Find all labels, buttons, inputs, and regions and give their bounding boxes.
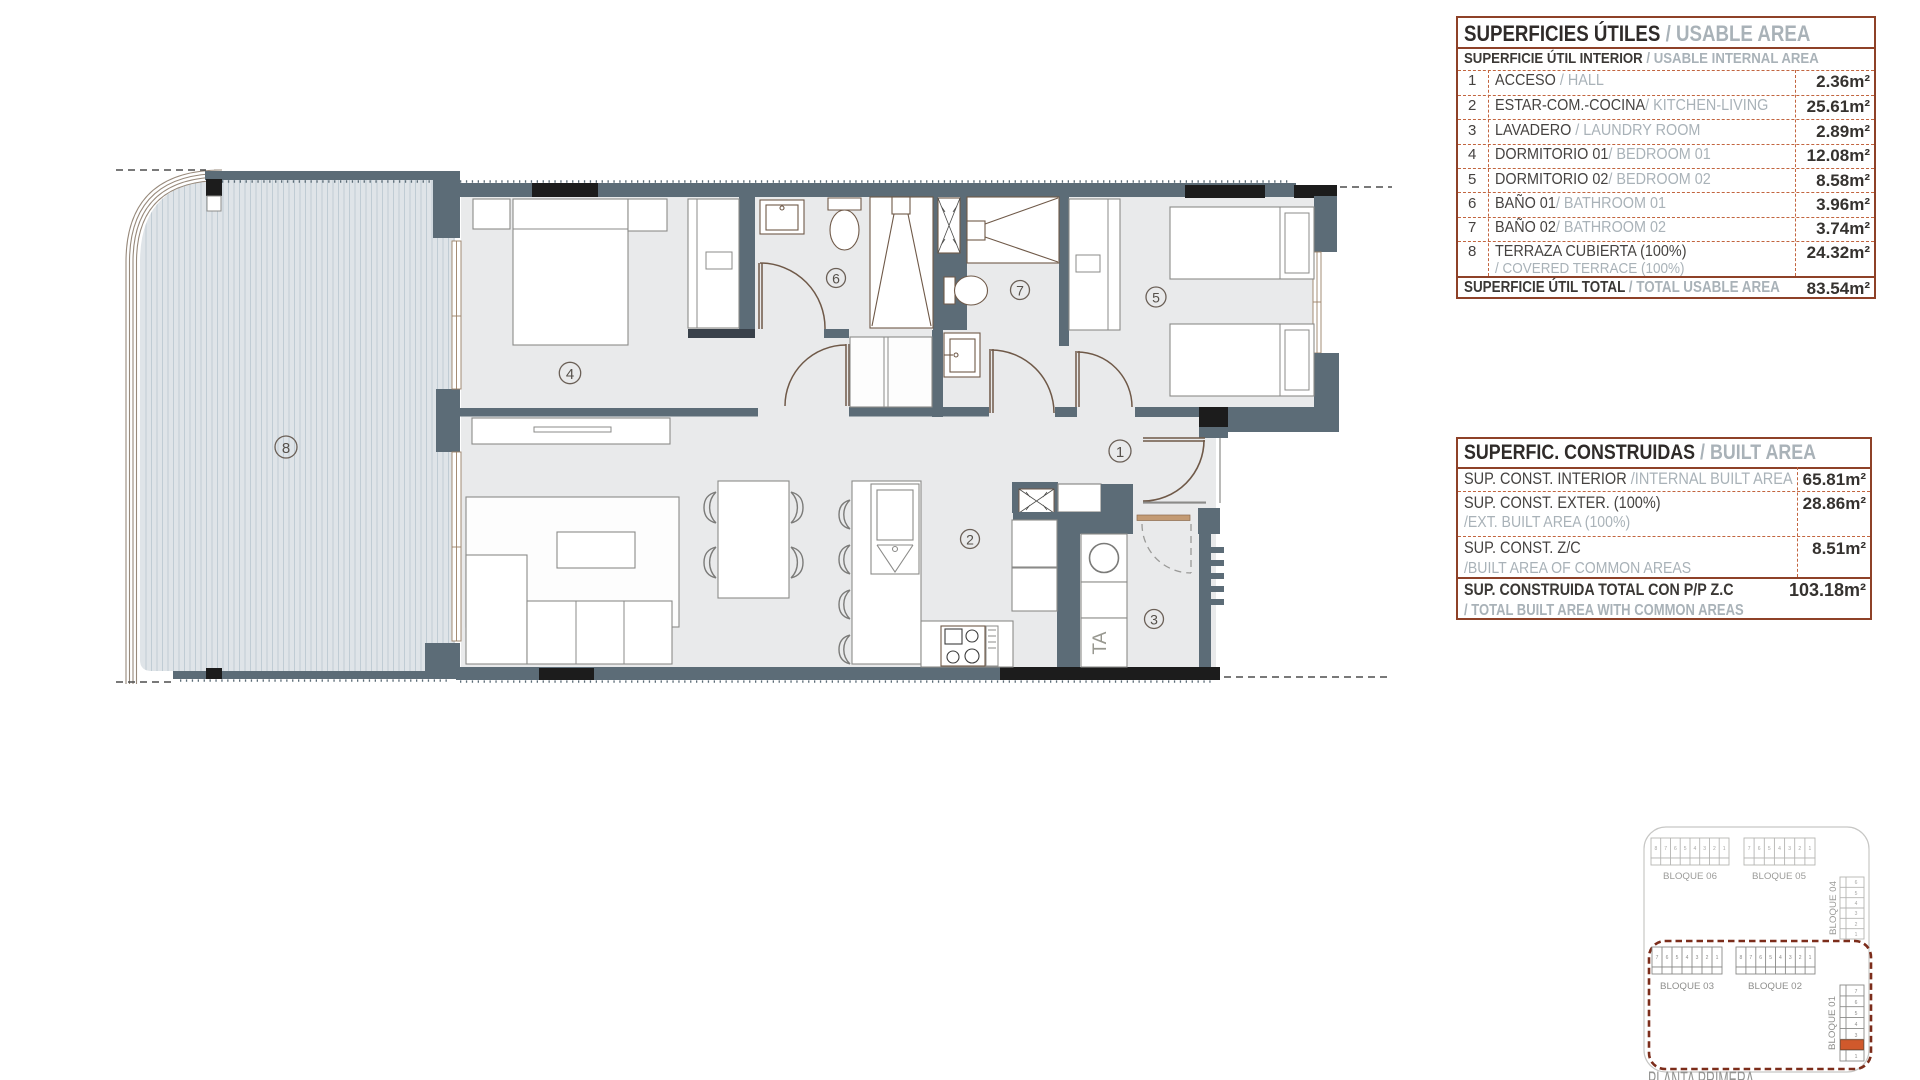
svg-text:PLANTA PRIMERA: PLANTA PRIMERA xyxy=(1648,1067,1754,1080)
svg-text:3: 3 xyxy=(1855,1033,1858,1039)
svg-text:2: 2 xyxy=(1855,922,1858,928)
svg-text:1: 1 xyxy=(1809,846,1812,852)
svg-text:8: 8 xyxy=(1655,846,1658,852)
svg-text:7: 7 xyxy=(1656,955,1659,961)
svg-text:7: 7 xyxy=(1664,846,1667,852)
svg-text:6: 6 xyxy=(1758,846,1761,852)
svg-text:4: 4 xyxy=(1686,955,1689,961)
svg-text:7: 7 xyxy=(1749,955,1752,961)
svg-text:5: 5 xyxy=(1855,1011,1858,1017)
svg-text:3: 3 xyxy=(1696,955,1699,961)
svg-text:5: 5 xyxy=(1855,891,1858,897)
svg-text:1: 1 xyxy=(1855,1054,1858,1060)
svg-text:6: 6 xyxy=(1666,955,1669,961)
svg-text:1: 1 xyxy=(1809,955,1812,961)
svg-text:8: 8 xyxy=(1740,955,1743,961)
svg-text:3: 3 xyxy=(1855,911,1858,917)
svg-text:4: 4 xyxy=(1855,901,1858,907)
svg-text:BLOQUE 01: BLOQUE 01 xyxy=(1827,996,1838,1050)
svg-text:2: 2 xyxy=(1799,955,1802,961)
svg-text:5: 5 xyxy=(1684,846,1687,852)
svg-text:2: 2 xyxy=(1713,846,1716,852)
svg-text:5: 5 xyxy=(1676,955,1679,961)
svg-text:BLOQUE 02: BLOQUE 02 xyxy=(1748,981,1802,992)
svg-text:5: 5 xyxy=(1769,955,1772,961)
svg-text:7: 7 xyxy=(1748,846,1751,852)
svg-text:BLOQUE 06: BLOQUE 06 xyxy=(1663,871,1717,882)
svg-text:6: 6 xyxy=(1855,880,1858,886)
svg-text:2: 2 xyxy=(1706,955,1709,961)
svg-text:1: 1 xyxy=(1716,955,1719,961)
svg-text:3: 3 xyxy=(1703,846,1706,852)
svg-text:3: 3 xyxy=(1788,846,1791,852)
svg-text:4: 4 xyxy=(1779,955,1782,961)
svg-text:1: 1 xyxy=(1723,846,1726,852)
svg-text:4: 4 xyxy=(1855,1022,1858,1028)
svg-text:3: 3 xyxy=(1789,955,1792,961)
svg-text:1: 1 xyxy=(1855,932,1858,938)
svg-text:BLOQUE 05: BLOQUE 05 xyxy=(1752,871,1806,882)
svg-text:BLOQUE 03: BLOQUE 03 xyxy=(1660,981,1714,992)
svg-text:7: 7 xyxy=(1855,989,1858,995)
svg-text:6: 6 xyxy=(1759,955,1762,961)
svg-text:BLOQUE 04: BLOQUE 04 xyxy=(1828,881,1839,935)
svg-text:4: 4 xyxy=(1778,846,1781,852)
svg-text:2: 2 xyxy=(1798,846,1801,852)
svg-text:6: 6 xyxy=(1674,846,1677,852)
svg-text:6: 6 xyxy=(1855,1000,1858,1006)
svg-text:4: 4 xyxy=(1694,846,1697,852)
svg-text:5: 5 xyxy=(1768,846,1771,852)
